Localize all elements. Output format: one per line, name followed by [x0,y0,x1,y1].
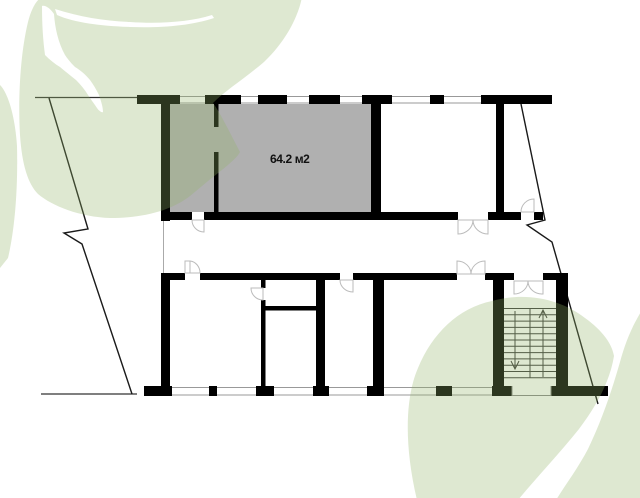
svg-text:64.2 м2: 64.2 м2 [270,152,310,166]
